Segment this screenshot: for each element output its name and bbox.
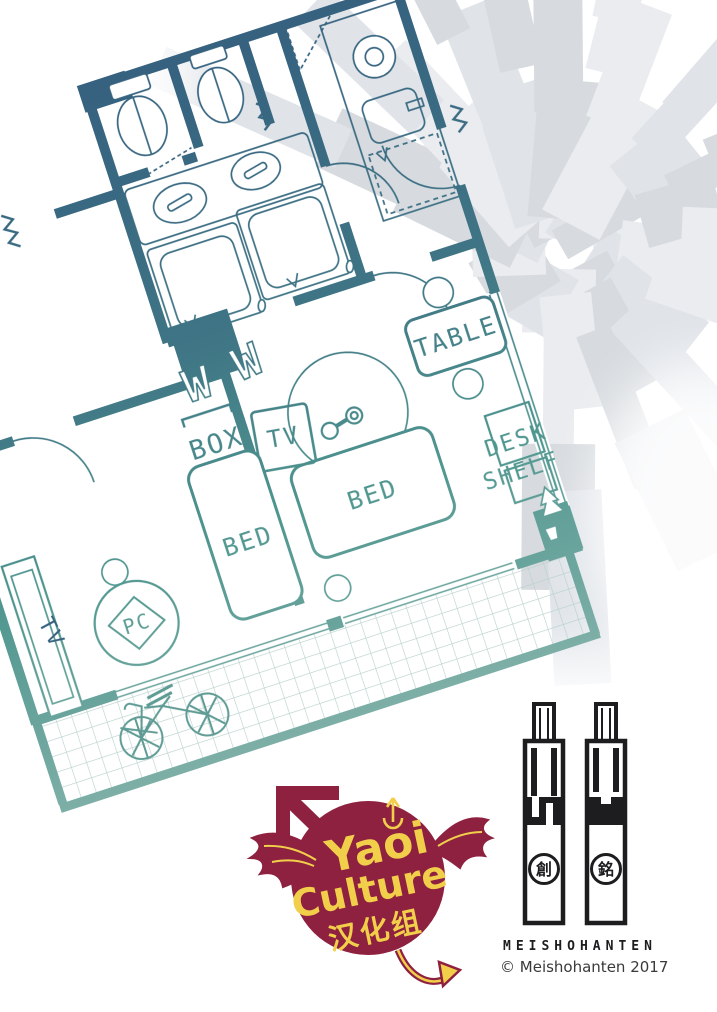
seal-glyph-left: 創 (535, 860, 552, 879)
copyright-line: © Meishohanten 2017 (500, 958, 668, 976)
artwork-canvas: BED TABLE DESK SHELF TV BOX BED (0, 0, 717, 1012)
scanlation-logo: Yaoi Culture 汉化组 (250, 786, 492, 986)
doujin-credits-page: BED TABLE DESK SHELF TV BOX BED (0, 0, 717, 1012)
burst-shape (679, 207, 717, 300)
seal-glyph-right: 銘 (598, 860, 614, 879)
tv-unit-label: TV (265, 421, 302, 454)
tail-arrow-tip (439, 962, 460, 986)
burst-shape (533, 0, 583, 112)
chair-icon (449, 365, 487, 403)
dumbbell-icon (317, 405, 366, 440)
publisher-wordmark: MEISHOHANTEN (503, 939, 657, 954)
